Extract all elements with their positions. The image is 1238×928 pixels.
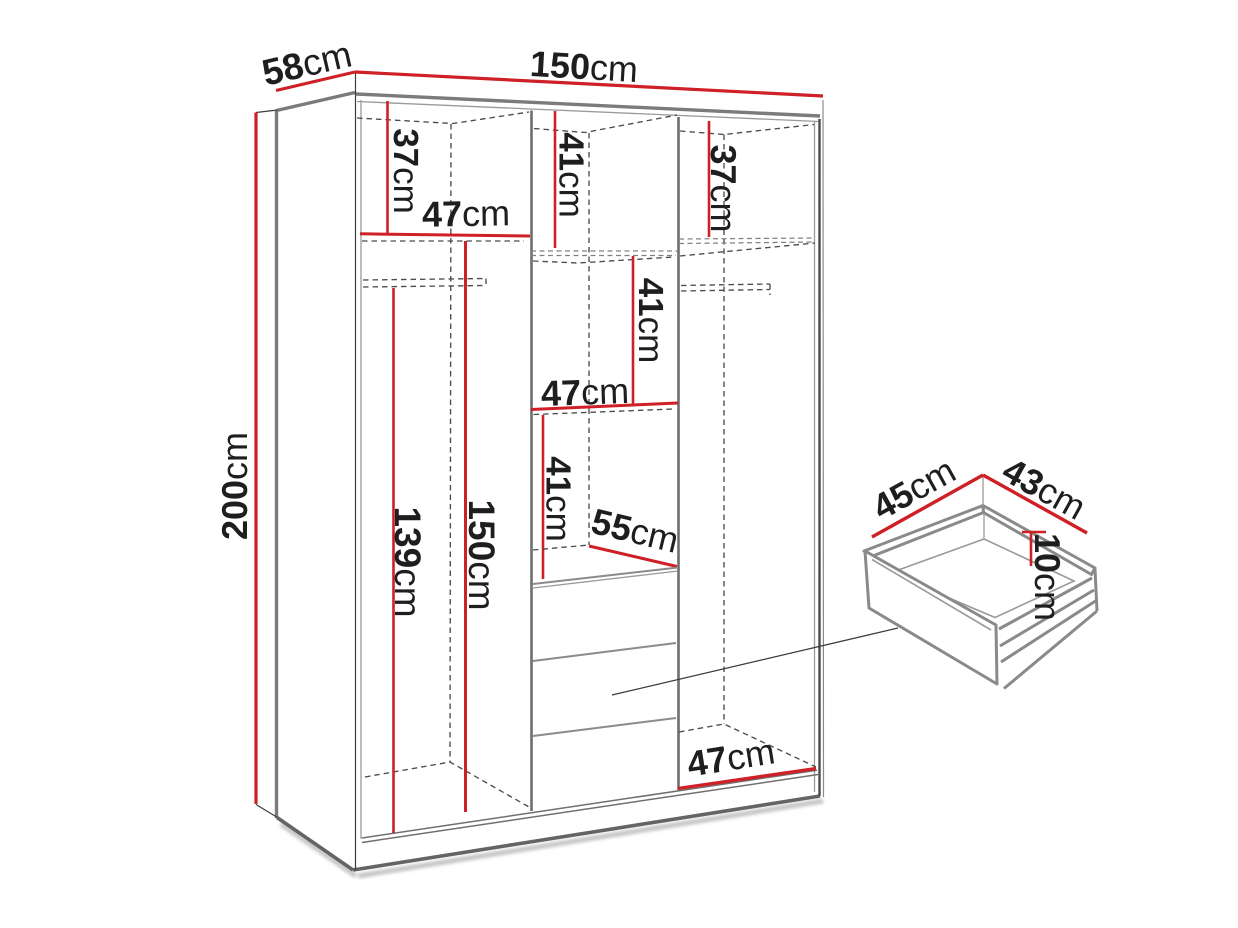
svg-text:10cm: 10cm bbox=[1027, 533, 1068, 621]
svg-text:41cm: 41cm bbox=[631, 278, 670, 364]
svg-text:41cm: 41cm bbox=[552, 132, 591, 218]
svg-text:150cm: 150cm bbox=[461, 499, 502, 610]
svg-text:47cm: 47cm bbox=[540, 370, 629, 414]
svg-text:200cm: 200cm bbox=[214, 432, 255, 540]
svg-text:41cm: 41cm bbox=[539, 456, 578, 542]
svg-text:37cm: 37cm bbox=[703, 144, 744, 232]
svg-text:150cm: 150cm bbox=[529, 43, 639, 90]
svg-text:47cm: 47cm bbox=[422, 192, 511, 235]
svg-text:139cm: 139cm bbox=[387, 506, 428, 617]
svg-text:37cm: 37cm bbox=[386, 128, 425, 214]
